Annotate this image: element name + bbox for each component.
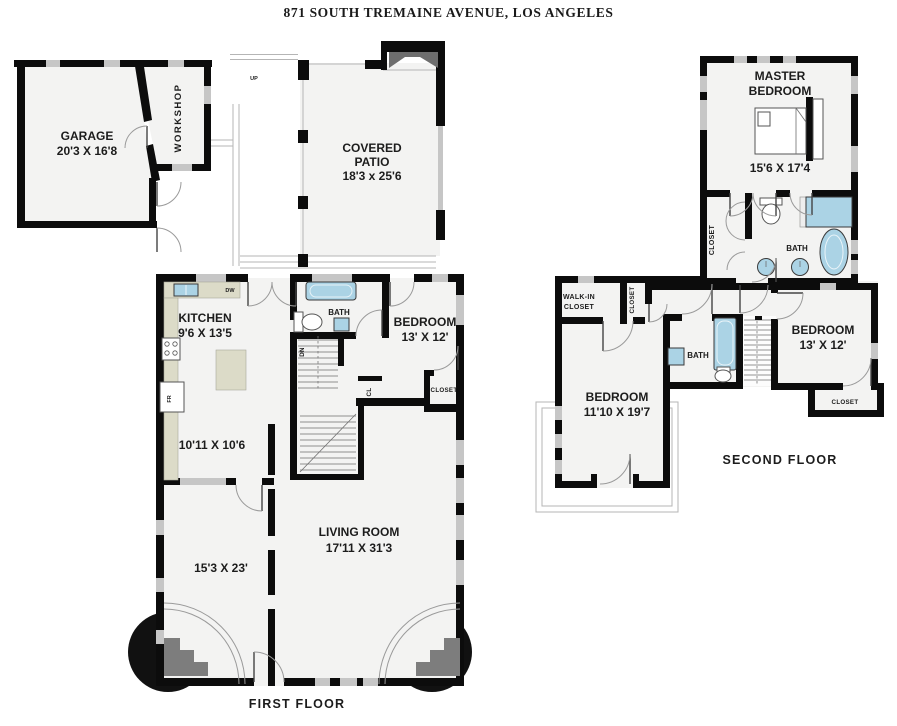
walkin-closet-label-line1: WALK-IN — [563, 294, 595, 301]
shower-icon — [806, 197, 852, 227]
hall-toilet-icon — [715, 367, 731, 382]
dishwasher-label: DW — [225, 288, 235, 294]
bedroom-right-closet-label: CLOSET — [832, 399, 859, 406]
hall-tub-icon — [714, 318, 736, 370]
master-bedroom-label-line2: BEDROOM — [749, 84, 812, 98]
bedroom-right-dims: 13' X 12' — [799, 338, 846, 352]
floor-plan-drawing: GARAGE 20'3 X 16'8 WORKSHOP COVERED PATI… — [0, 0, 897, 726]
first-floor-caption: FIRST FLOOR — [249, 697, 346, 711]
patio-label-line1: COVERED — [342, 141, 402, 155]
walkin-closet-label-line2: CLOSET — [564, 304, 595, 311]
garage-dims: 20'3 X 16'8 — [57, 144, 118, 158]
bath-label: BATH — [328, 308, 350, 317]
master-bedroom-label-line1: MASTER — [755, 69, 806, 83]
dining-dims: 10'11 X 10'6 — [179, 438, 246, 452]
living-room-dims: 17'11 X 31'3 — [326, 541, 393, 555]
bedroom-closet-label: CLOSET — [431, 387, 458, 394]
patio-label-line2: PATIO — [355, 155, 390, 169]
stairs-down-label: DN — [299, 347, 306, 357]
second-floor-plan: MASTER BEDROOM 15'6 X 17'4 CLOSET BATH W… — [536, 56, 884, 512]
kitchen-island — [216, 350, 246, 390]
first-floor-plan: GARAGE 20'3 X 16'8 WORKSHOP COVERED PATI… — [14, 41, 472, 711]
bedroom-left-dims: 11'10 X 19'7 — [584, 405, 651, 419]
front-room-dims: 15'3 X 23' — [194, 561, 248, 575]
second-floor-caption: SECOND FLOOR — [722, 453, 837, 467]
bedroom-right-label: BEDROOM — [792, 323, 855, 337]
master-toilet-icon — [760, 198, 782, 224]
exterior-up-label: UP — [250, 76, 258, 82]
toilet-icon — [294, 312, 322, 332]
bath-sink-icon — [334, 318, 349, 331]
master-bath-label: BATH — [786, 244, 808, 253]
freestanding-tub-icon — [820, 229, 848, 275]
hall-closet-cl-label: CL — [366, 388, 373, 397]
kitchen-label: KITCHEN — [178, 311, 231, 325]
master-closet-label: CLOSET — [709, 224, 716, 255]
stove-icon — [162, 338, 180, 360]
floor-plan-page: 871 SOUTH TREMAINE AVENUE, LOS ANGELES — [0, 0, 897, 726]
hall-bath-label: BATH — [687, 351, 709, 360]
patio-dims: 18'3 x 25'6 — [342, 169, 401, 183]
bedroom-label: BEDROOM — [394, 315, 457, 329]
hall-closet-label: CLOSET — [629, 287, 636, 314]
hall-sink-icon — [668, 348, 684, 365]
workshop-label: WORKSHOP — [173, 84, 184, 153]
kitchen-dims: 9'6 X 13'5 — [178, 326, 232, 340]
garage-label: GARAGE — [61, 129, 114, 143]
bedroom-dims: 13' X 12' — [401, 330, 448, 344]
bedroom-left-label: BEDROOM — [586, 390, 649, 404]
fridge-label: FR — [167, 395, 173, 402]
master-bedroom-dims: 15'6 X 17'4 — [750, 161, 811, 175]
living-room-label: LIVING ROOM — [319, 525, 400, 539]
